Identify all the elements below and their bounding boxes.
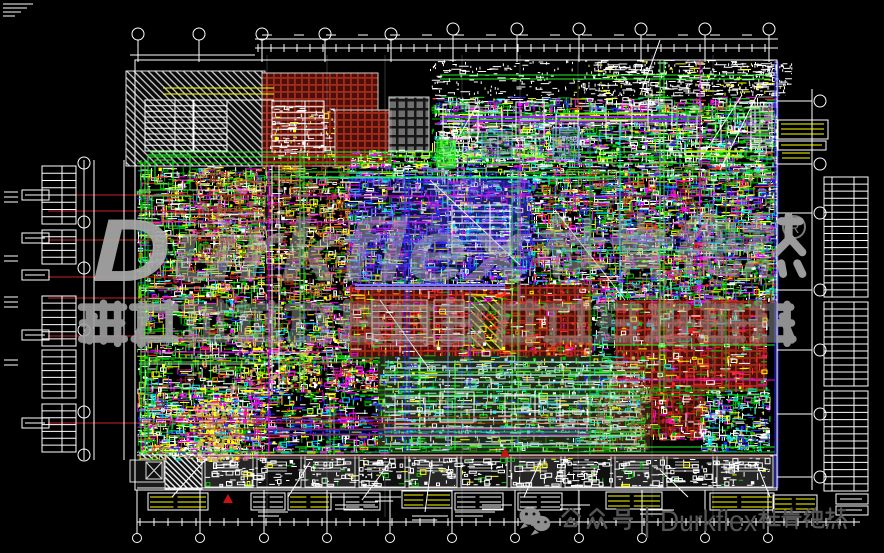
svg-text:R: R (789, 220, 800, 237)
svg-text:Durkflex: Durkflex (660, 505, 757, 538)
